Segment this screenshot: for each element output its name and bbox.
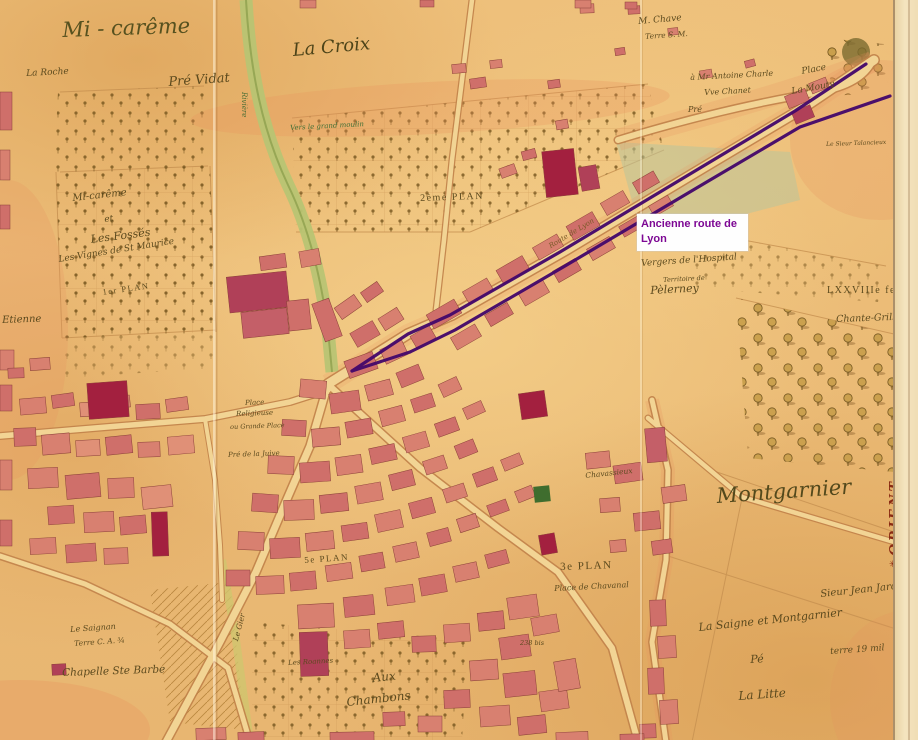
tree-rows xyxy=(736,298,894,472)
green-plot xyxy=(533,485,551,503)
map-canvas: Mi - carêmeLa RochePré VidatLa CroixVers… xyxy=(0,0,918,740)
map-graphics xyxy=(0,0,918,740)
map-page-edge xyxy=(893,0,918,740)
route-annotation-label: Ancienne route de Lyon xyxy=(637,214,748,251)
